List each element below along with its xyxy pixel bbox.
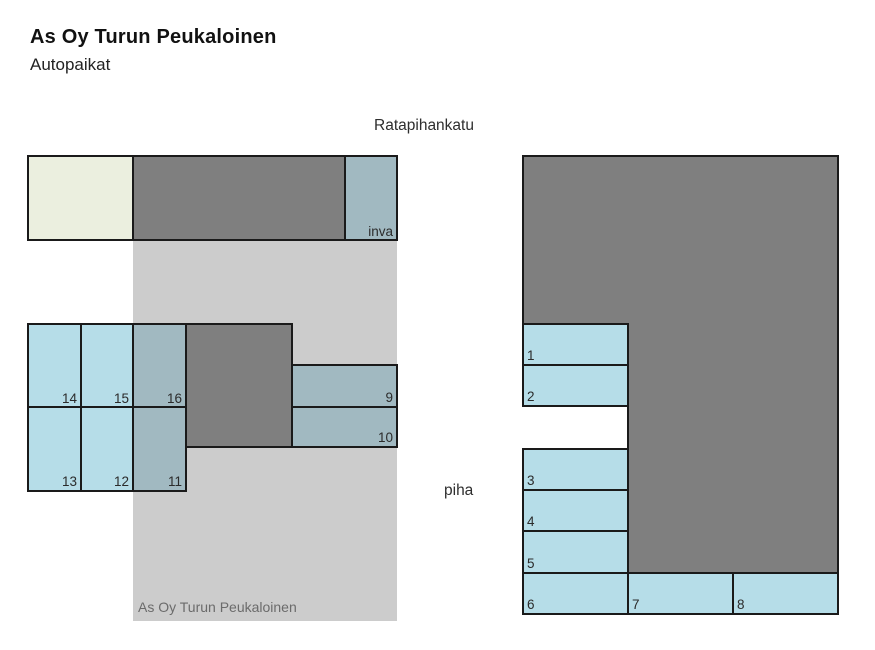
parking-space-12-label: 12: [114, 474, 129, 489]
parking-space-9-label: 9: [385, 390, 393, 405]
parking-space-15-label: 15: [114, 391, 129, 406]
apartment-building-label: As Oy Turun Peukaloinen: [138, 599, 297, 615]
parking-space-14-label: 14: [62, 391, 78, 406]
parking-space-11-label: 11: [168, 474, 182, 489]
parking-space-2: [523, 365, 628, 406]
parking-space-10-label: 10: [378, 430, 393, 445]
parking-space-3: [523, 449, 628, 490]
parking-space-9: [292, 365, 397, 407]
street-building-block: [133, 156, 345, 240]
parking-space-16-label: 16: [167, 391, 182, 406]
parking-space-inva-label: inva: [368, 224, 393, 239]
parking-space-6: [523, 573, 628, 614]
parking-space-3-label: 3: [527, 473, 535, 488]
parking-space-7: [628, 573, 733, 614]
parking-space-5-label: 5: [527, 556, 535, 571]
parking-plan-page: As Oy Turun Peukaloinen Autopaikat Ratap…: [0, 0, 875, 650]
parking-space-1: [523, 324, 628, 365]
parking-space-13-label: 13: [62, 474, 77, 489]
parking-space-1-label: 1: [527, 348, 535, 363]
lawn-area: [28, 156, 133, 240]
site-plan: Ratapihankatu As Oy Turun Peukaloinen in…: [0, 0, 875, 650]
parking-space-8-label: 8: [737, 597, 745, 612]
parking-space-7-label: 7: [632, 597, 640, 612]
yard-label: piha: [444, 482, 474, 499]
parking-space-2-label: 2: [527, 389, 535, 404]
center-building-block: [186, 324, 292, 447]
parking-space-6-label: 6: [527, 597, 535, 612]
parking-space-4: [523, 490, 628, 531]
parking-space-4-label: 4: [527, 514, 535, 529]
parking-space-5: [523, 531, 628, 573]
parking-space-8: [733, 573, 838, 614]
street-label: Ratapihankatu: [374, 117, 474, 134]
